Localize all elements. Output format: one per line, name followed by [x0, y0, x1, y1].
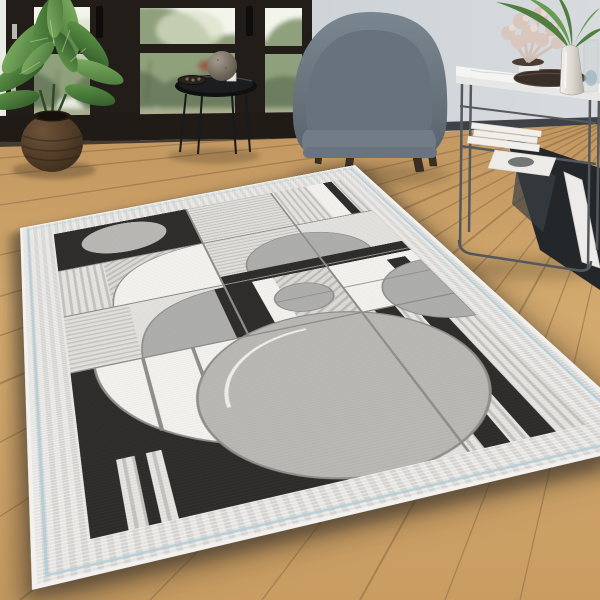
round-vase [207, 51, 237, 81]
door-handle [96, 6, 103, 38]
armchair [293, 12, 447, 172]
pot-soil [37, 112, 67, 120]
scene [0, 0, 600, 600]
door-handle [246, 6, 253, 36]
hinge-mark [12, 24, 17, 39]
